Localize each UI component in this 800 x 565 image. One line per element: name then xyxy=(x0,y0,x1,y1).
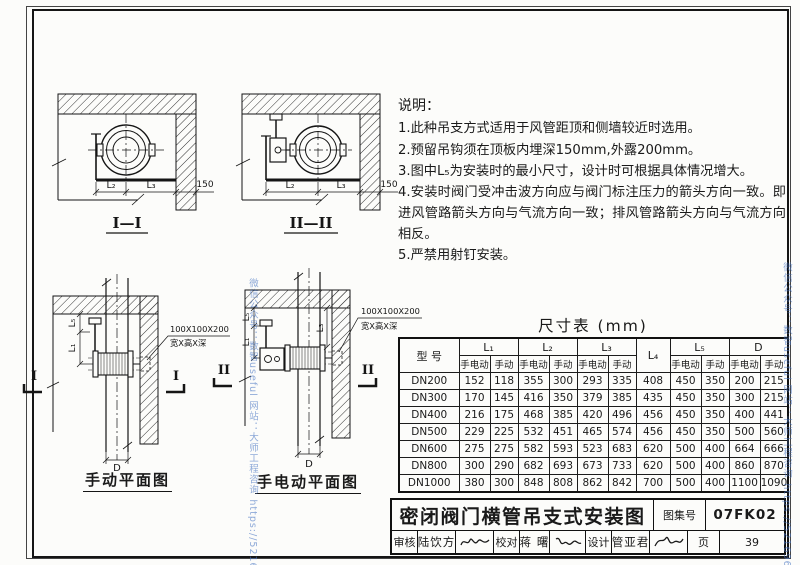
dim-label-l2: L₂ xyxy=(106,180,115,191)
value-cell: 496 xyxy=(608,407,636,424)
col-l4: L₄ xyxy=(636,338,670,373)
dim-label-l3: L₃ xyxy=(336,180,345,191)
value-cell: 118 xyxy=(490,373,518,390)
value-cell: 456 xyxy=(636,424,670,441)
note-item: 1.此种吊支方式适用于风管距顶和侧墙较近时选用。 xyxy=(398,118,786,139)
room-outline xyxy=(52,114,144,205)
value-cell: 593 xyxy=(549,441,577,458)
value-cell: 300 xyxy=(729,390,760,407)
valve-handle xyxy=(89,318,101,351)
value-cell: 862 xyxy=(577,475,608,493)
table-row: DN600275275582593523683620500400664666 xyxy=(399,441,788,458)
marker-left: II xyxy=(218,363,230,378)
value-cell: 456 xyxy=(636,407,670,424)
room-outline xyxy=(47,296,59,432)
value-cell: 350 xyxy=(701,407,729,424)
review-name: 陆饮方 xyxy=(418,531,456,553)
check-signature xyxy=(550,531,586,553)
value-cell: 860 xyxy=(729,458,760,475)
col-l2: L₂ xyxy=(518,338,577,356)
atlas-no-value: 07FK02 xyxy=(706,500,784,530)
value-cell: 300 xyxy=(459,458,490,475)
note-item: 3.图中L₅为安装时的最小尺寸，设计时可根据具体情况增大。 xyxy=(398,161,786,182)
callout-desc: 宽X高X深 xyxy=(361,321,397,331)
value-cell: 416 xyxy=(518,390,549,407)
value-cell: 335 xyxy=(608,373,636,390)
check-label: 校对 xyxy=(494,531,520,553)
section-view-i: L₂ L₃ 150 I—I xyxy=(40,86,222,238)
title-block-row1: 密闭阀门横管吊支式安装图 图集号 07FK02 xyxy=(392,500,784,531)
note-item: 5.严禁用射钉安装。 xyxy=(398,245,786,266)
model-cell: DN600 xyxy=(399,441,459,458)
value-cell: 683 xyxy=(608,441,636,458)
section-view-ii: L₂ L₃ 150 II—II xyxy=(224,86,406,238)
sub-electric: 手电动 xyxy=(577,356,608,373)
value-cell: 216 xyxy=(459,407,490,424)
value-cell: 582 xyxy=(518,441,549,458)
notes-block: 说明： 1.此种吊支方式适用于风管距顶和侧墙较近时选用。2.预留吊钩须在顶板内埋… xyxy=(398,95,786,266)
col-l5: L₅ xyxy=(670,338,729,356)
sub-manual: 手动 xyxy=(701,356,729,373)
dim-table-body: DN200152118355300293335408450350200215DN… xyxy=(399,373,788,493)
watermark-right: 微信公众号：数智useful 网站：大师工程咨询 https://521696.… xyxy=(779,262,793,560)
value-cell: 842 xyxy=(608,475,636,493)
section-label-ii: II—II xyxy=(289,214,332,232)
sub-manual: 手动 xyxy=(490,356,518,373)
value-cell: 500 xyxy=(670,475,701,493)
table-row: DN500229225532451465574456450350500560 xyxy=(399,424,788,441)
value-cell: 408 xyxy=(636,373,670,390)
sub-electric: 手电动 xyxy=(670,356,701,373)
value-cell: 532 xyxy=(518,424,549,441)
title-block-row2: 审核 陆饮方 校对 蒋 曙 设计 管亚君 页 39 xyxy=(392,531,784,553)
model-cell: DN200 xyxy=(399,373,459,390)
sub-electric: 手电动 xyxy=(729,356,760,373)
watermark-left: 微信公众号：数智useful 网站：大师工程咨询 https://521696.… xyxy=(245,278,259,530)
value-cell: 400 xyxy=(701,458,729,475)
value-cell: 682 xyxy=(518,458,549,475)
plan-view-manual: L₅ L₁ D 100X100X200 宽X高X深 I I xyxy=(18,272,233,472)
value-cell: 400 xyxy=(729,407,760,424)
hanger-bracket xyxy=(91,134,176,180)
note-item: 2.预留吊钩须在顶板内埋深150mm,外露200mm。 xyxy=(398,140,786,161)
review-signature xyxy=(456,531,494,553)
value-cell: 500 xyxy=(670,458,701,475)
table-row: DN800300290682693673733620500400860870 xyxy=(399,458,788,475)
value-cell: 693 xyxy=(549,458,577,475)
value-cell: 170 xyxy=(459,390,490,407)
design-name: 管亚君 xyxy=(612,531,650,553)
design-signature xyxy=(650,531,688,553)
col-l3: L₃ xyxy=(577,338,636,356)
dim-label-l3: L₃ xyxy=(316,323,326,332)
signature-check xyxy=(552,534,584,550)
value-cell: 275 xyxy=(490,441,518,458)
value-cell: 300 xyxy=(549,373,577,390)
model-cell: DN500 xyxy=(399,424,459,441)
dim-label-l2: L₂ xyxy=(285,180,294,191)
value-cell: 500 xyxy=(729,424,760,441)
value-cell: 175 xyxy=(490,407,518,424)
value-cell: 420 xyxy=(577,407,608,424)
value-cell: 465 xyxy=(577,424,608,441)
electric-actuator xyxy=(270,114,292,162)
valve-section xyxy=(280,114,352,186)
model-cell: DN400 xyxy=(399,407,459,424)
value-cell: 300 xyxy=(490,475,518,493)
section-label-i: I—I xyxy=(112,214,141,232)
value-cell: 620 xyxy=(636,441,670,458)
table-row: DN200152118355300293335408450350200215 xyxy=(399,373,788,390)
value-cell: 664 xyxy=(729,441,760,458)
value-cell: 733 xyxy=(608,458,636,475)
note-item: 4.安装时阀门受冲击波方向应与阀门标注压力的箭头方向一致。即进风管路箭头方向与气… xyxy=(398,182,786,245)
value-cell: 350 xyxy=(701,424,729,441)
value-cell: 380 xyxy=(459,475,490,493)
dim-label-150: 150 xyxy=(380,180,397,190)
sub-electric: 手电动 xyxy=(518,356,549,373)
value-cell: 152 xyxy=(459,373,490,390)
dim-label-d: D xyxy=(305,459,313,470)
value-cell: 229 xyxy=(459,424,490,441)
value-cell: 450 xyxy=(670,373,701,390)
value-cell: 450 xyxy=(670,390,701,407)
value-cell: 700 xyxy=(636,475,670,493)
sub-manual: 手动 xyxy=(608,356,636,373)
signature-design xyxy=(652,534,686,550)
value-cell: 450 xyxy=(670,407,701,424)
value-cell: 275 xyxy=(459,441,490,458)
design-label: 设计 xyxy=(586,531,612,553)
table-row: DN400216175468385420496456450350400441 xyxy=(399,407,788,424)
value-cell: 350 xyxy=(701,373,729,390)
col-l1: L₁ xyxy=(459,338,518,356)
check-name: 蒋 曙 xyxy=(520,531,550,553)
model-cell: DN300 xyxy=(399,390,459,407)
value-cell: 385 xyxy=(549,407,577,424)
page-label: 页 xyxy=(688,531,720,553)
value-cell: 355 xyxy=(518,373,549,390)
notes-list: 1.此种吊支方式适用于风管距顶和侧墙较近时选用。2.预留吊钩须在顶板内埋深150… xyxy=(398,118,786,266)
value-cell: 385 xyxy=(608,390,636,407)
marker-right: I xyxy=(173,369,179,384)
notes-heading: 说明： xyxy=(398,95,786,117)
value-cell: 574 xyxy=(608,424,636,441)
drawing-title: 密闭阀门横管吊支式安装图 xyxy=(392,500,654,530)
value-cell: 379 xyxy=(577,390,608,407)
value-cell: 673 xyxy=(577,458,608,475)
plan-view-electric: L₅ L₁ L₃ D 100X100X200 宽X高X深 II II xyxy=(210,266,425,471)
plan-manual-title: 手动平面图 xyxy=(55,469,200,490)
electric-actuator xyxy=(260,320,284,370)
marker-left: I xyxy=(31,369,37,384)
atlas-no-label: 图集号 xyxy=(654,500,706,530)
review-label: 审核 xyxy=(392,531,418,553)
marker-right: II xyxy=(362,363,374,378)
value-cell: 450 xyxy=(670,424,701,441)
col-model: 型 号 xyxy=(399,338,459,373)
callout-desc: 宽X高X深 xyxy=(170,338,206,348)
dimension-table: 型 号 L₁ L₂ L₃ L₄ L₅ D 手电动 手动 手电动 手动 手电动 手… xyxy=(398,337,789,493)
value-cell: 293 xyxy=(577,373,608,390)
value-cell: 290 xyxy=(490,458,518,475)
dim-label-150: 150 xyxy=(196,180,213,190)
dim-label-l3: L₃ xyxy=(146,180,155,191)
value-cell: 200 xyxy=(729,373,760,390)
value-cell: 400 xyxy=(701,475,729,493)
value-cell: 808 xyxy=(549,475,577,493)
dim-label-l1: L₁ xyxy=(68,343,78,352)
dimension-lines xyxy=(77,311,131,464)
value-cell: 451 xyxy=(549,424,577,441)
model-cell: DN1000 xyxy=(399,475,459,493)
value-cell: 145 xyxy=(490,390,518,407)
sub-manual: 手动 xyxy=(549,356,577,373)
value-cell: 848 xyxy=(518,475,549,493)
value-cell: 620 xyxy=(636,458,670,475)
sub-electric: 手电动 xyxy=(459,356,490,373)
dim-label-l5: L₅ xyxy=(68,318,78,327)
value-cell: 350 xyxy=(701,390,729,407)
dimension-table-title: 尺寸表 (mm) xyxy=(398,314,788,336)
value-cell: 225 xyxy=(490,424,518,441)
signature-review xyxy=(458,534,492,550)
value-cell: 523 xyxy=(577,441,608,458)
model-cell: DN800 xyxy=(399,458,459,475)
table-row: DN300170145416350379385435450350300215 xyxy=(399,390,788,407)
atlas-page: L₂ L₃ 150 I—I xyxy=(0,0,800,565)
value-cell: 400 xyxy=(701,441,729,458)
title-block: 密闭阀门横管吊支式安装图 图集号 07FK02 审核 陆饮方 校对 蒋 曙 设计… xyxy=(390,498,786,555)
page-number: 39 xyxy=(720,531,784,553)
value-cell: 500 xyxy=(670,441,701,458)
value-cell: 468 xyxy=(518,407,549,424)
table-header-groups: 型 号 L₁ L₂ L₃ L₄ L₅ D xyxy=(399,338,788,356)
value-cell: 350 xyxy=(549,390,577,407)
valve-section xyxy=(88,114,164,186)
value-cell: 435 xyxy=(636,390,670,407)
value-cell: 1100 xyxy=(729,475,760,493)
table-row: DN10003803008488088628427005004001100109… xyxy=(399,475,788,493)
